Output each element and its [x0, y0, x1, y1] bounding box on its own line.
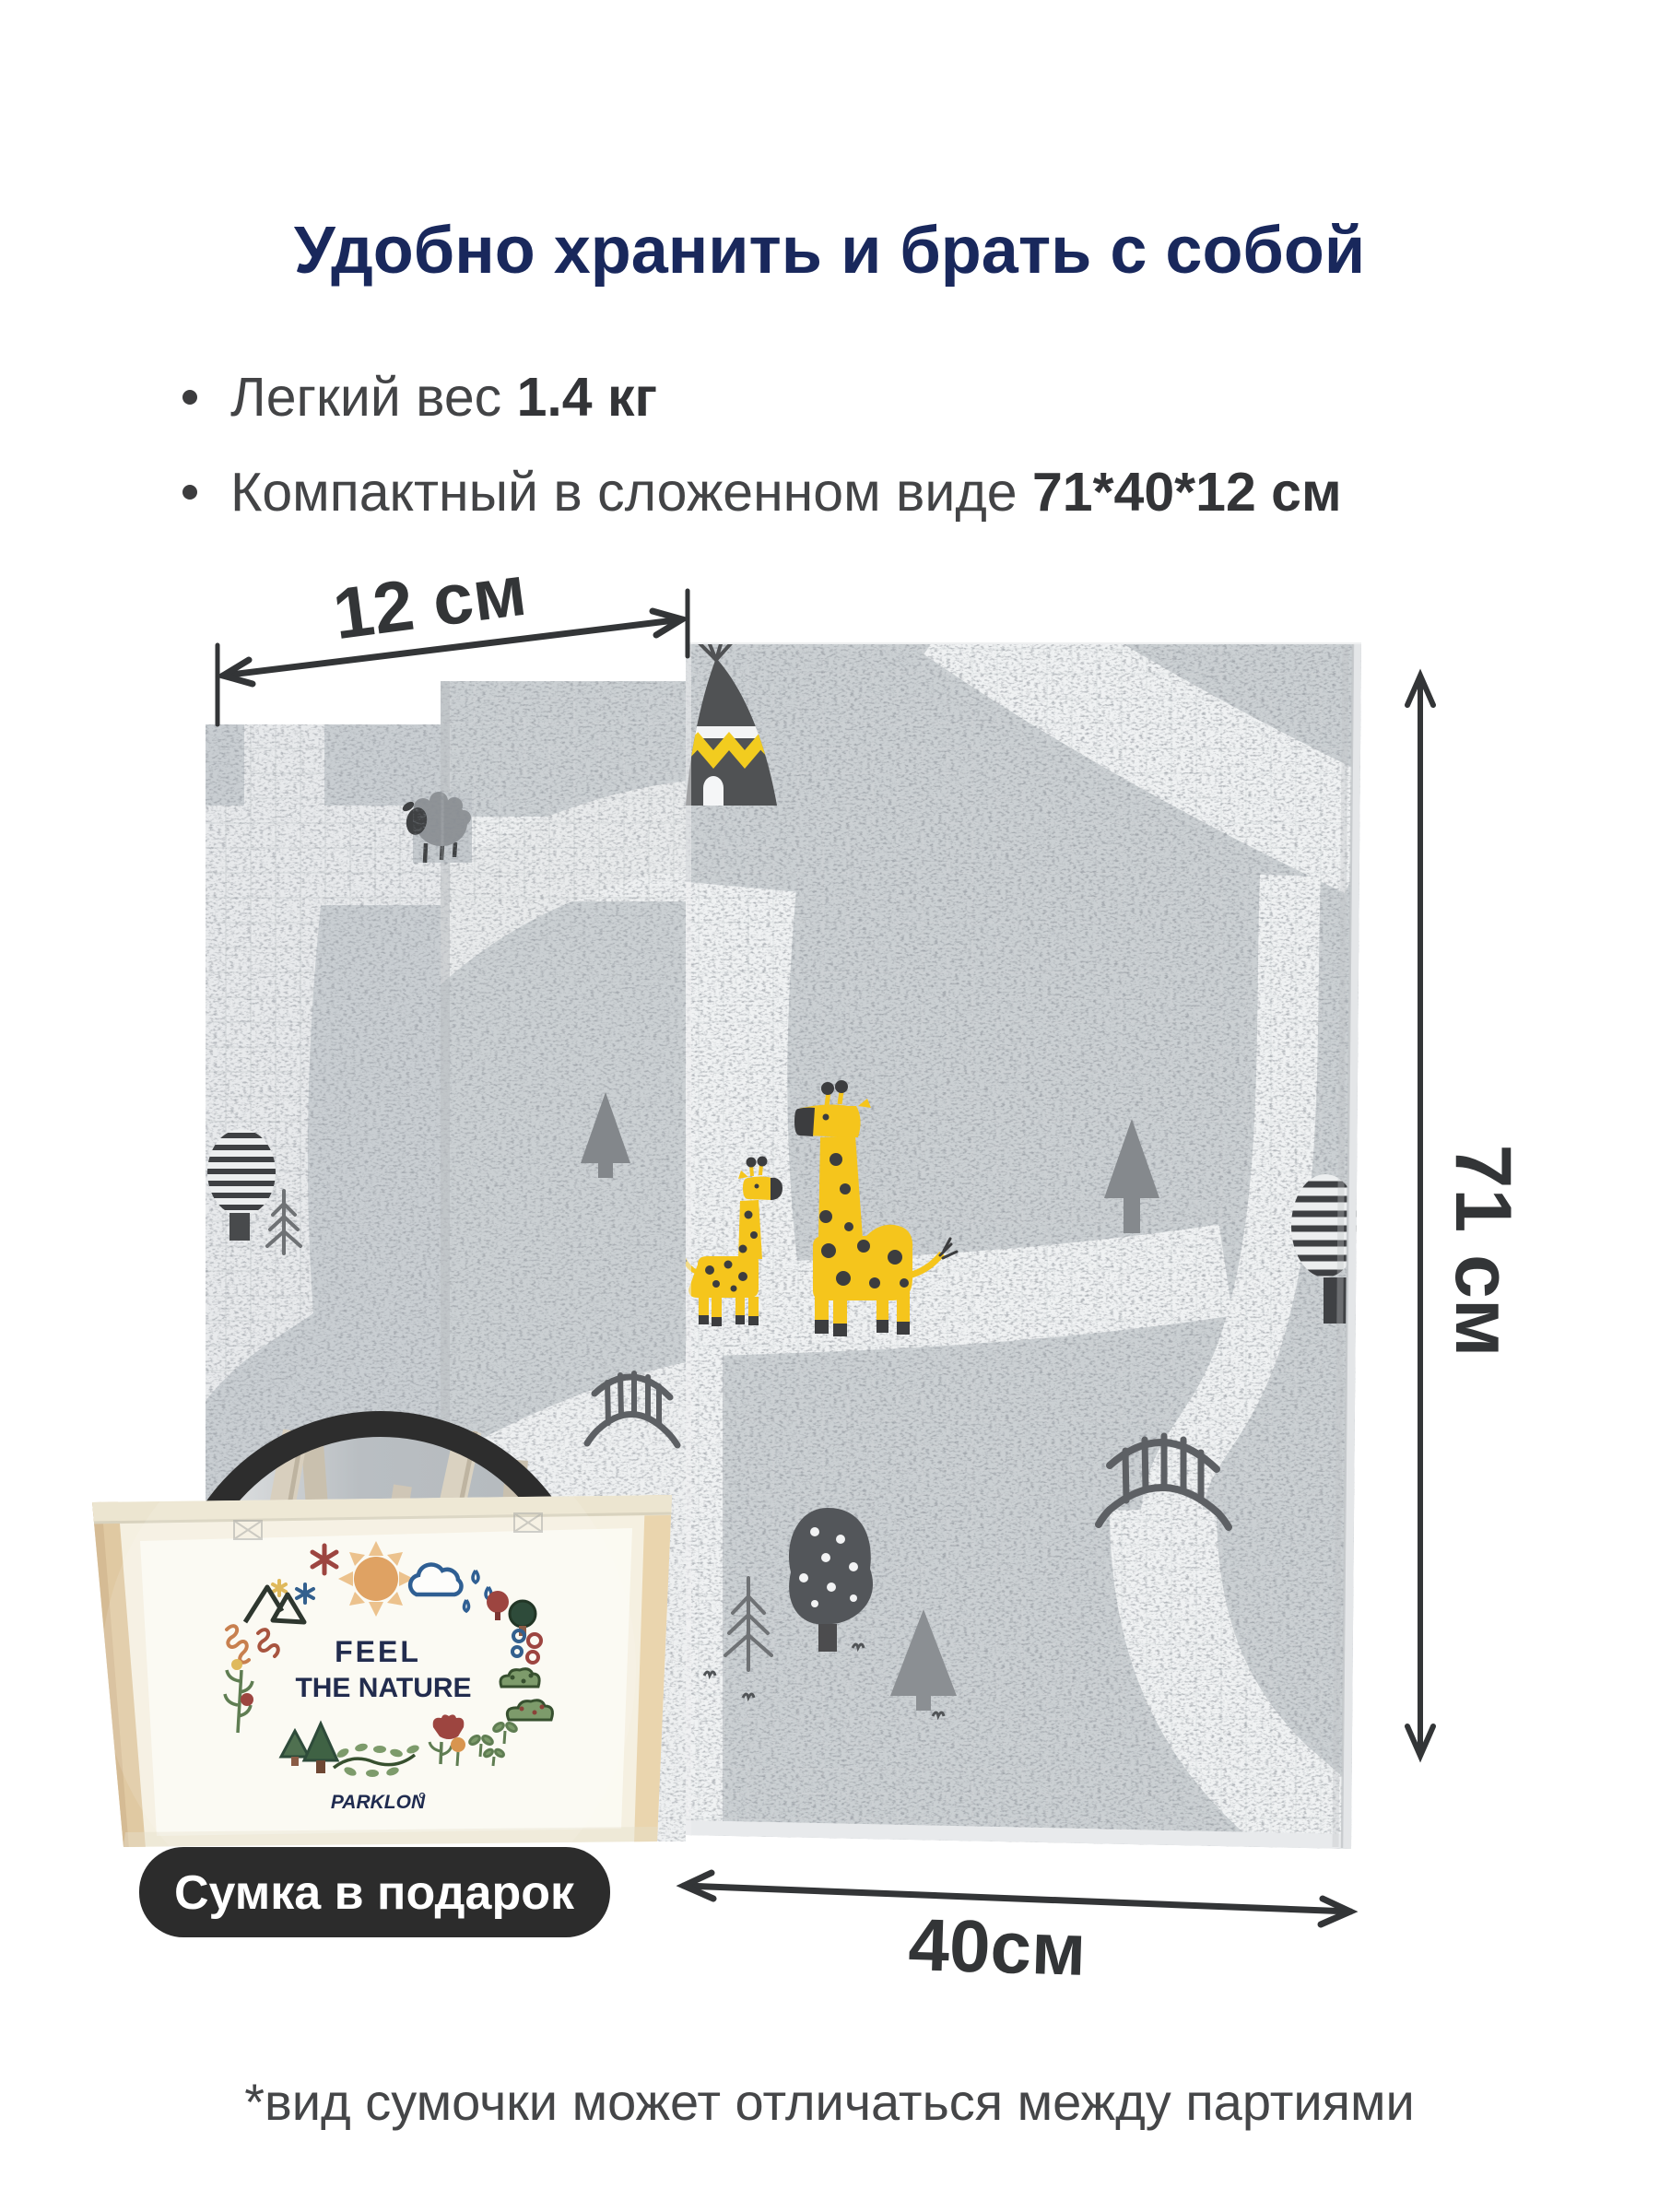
svg-text:Сумка в подарок: Сумка в подарок [174, 1866, 575, 1920]
svg-text:40см: 40см [907, 1903, 1087, 1991]
svg-text:PARKLON: PARKLON [331, 1792, 426, 1813]
svg-text:*вид сумочки может отличаться: *вид сумочки может отличаться между парт… [244, 2073, 1415, 2131]
svg-text:Компактный в сложенном виде 71: Компактный в сложенном виде 71*40*12 см [230, 462, 1342, 523]
svg-text:FEEL: FEEL [335, 1635, 421, 1668]
svg-text:Удобно хранить и брать с собой: Удобно хранить и брать с собой [294, 214, 1365, 288]
svg-text:THE NATURE: THE NATURE [295, 1673, 471, 1703]
svg-text:Легкий вес 1.4 кг: Легкий вес 1.4 кг [230, 367, 657, 428]
svg-text:71 см: 71 см [1439, 1145, 1527, 1358]
